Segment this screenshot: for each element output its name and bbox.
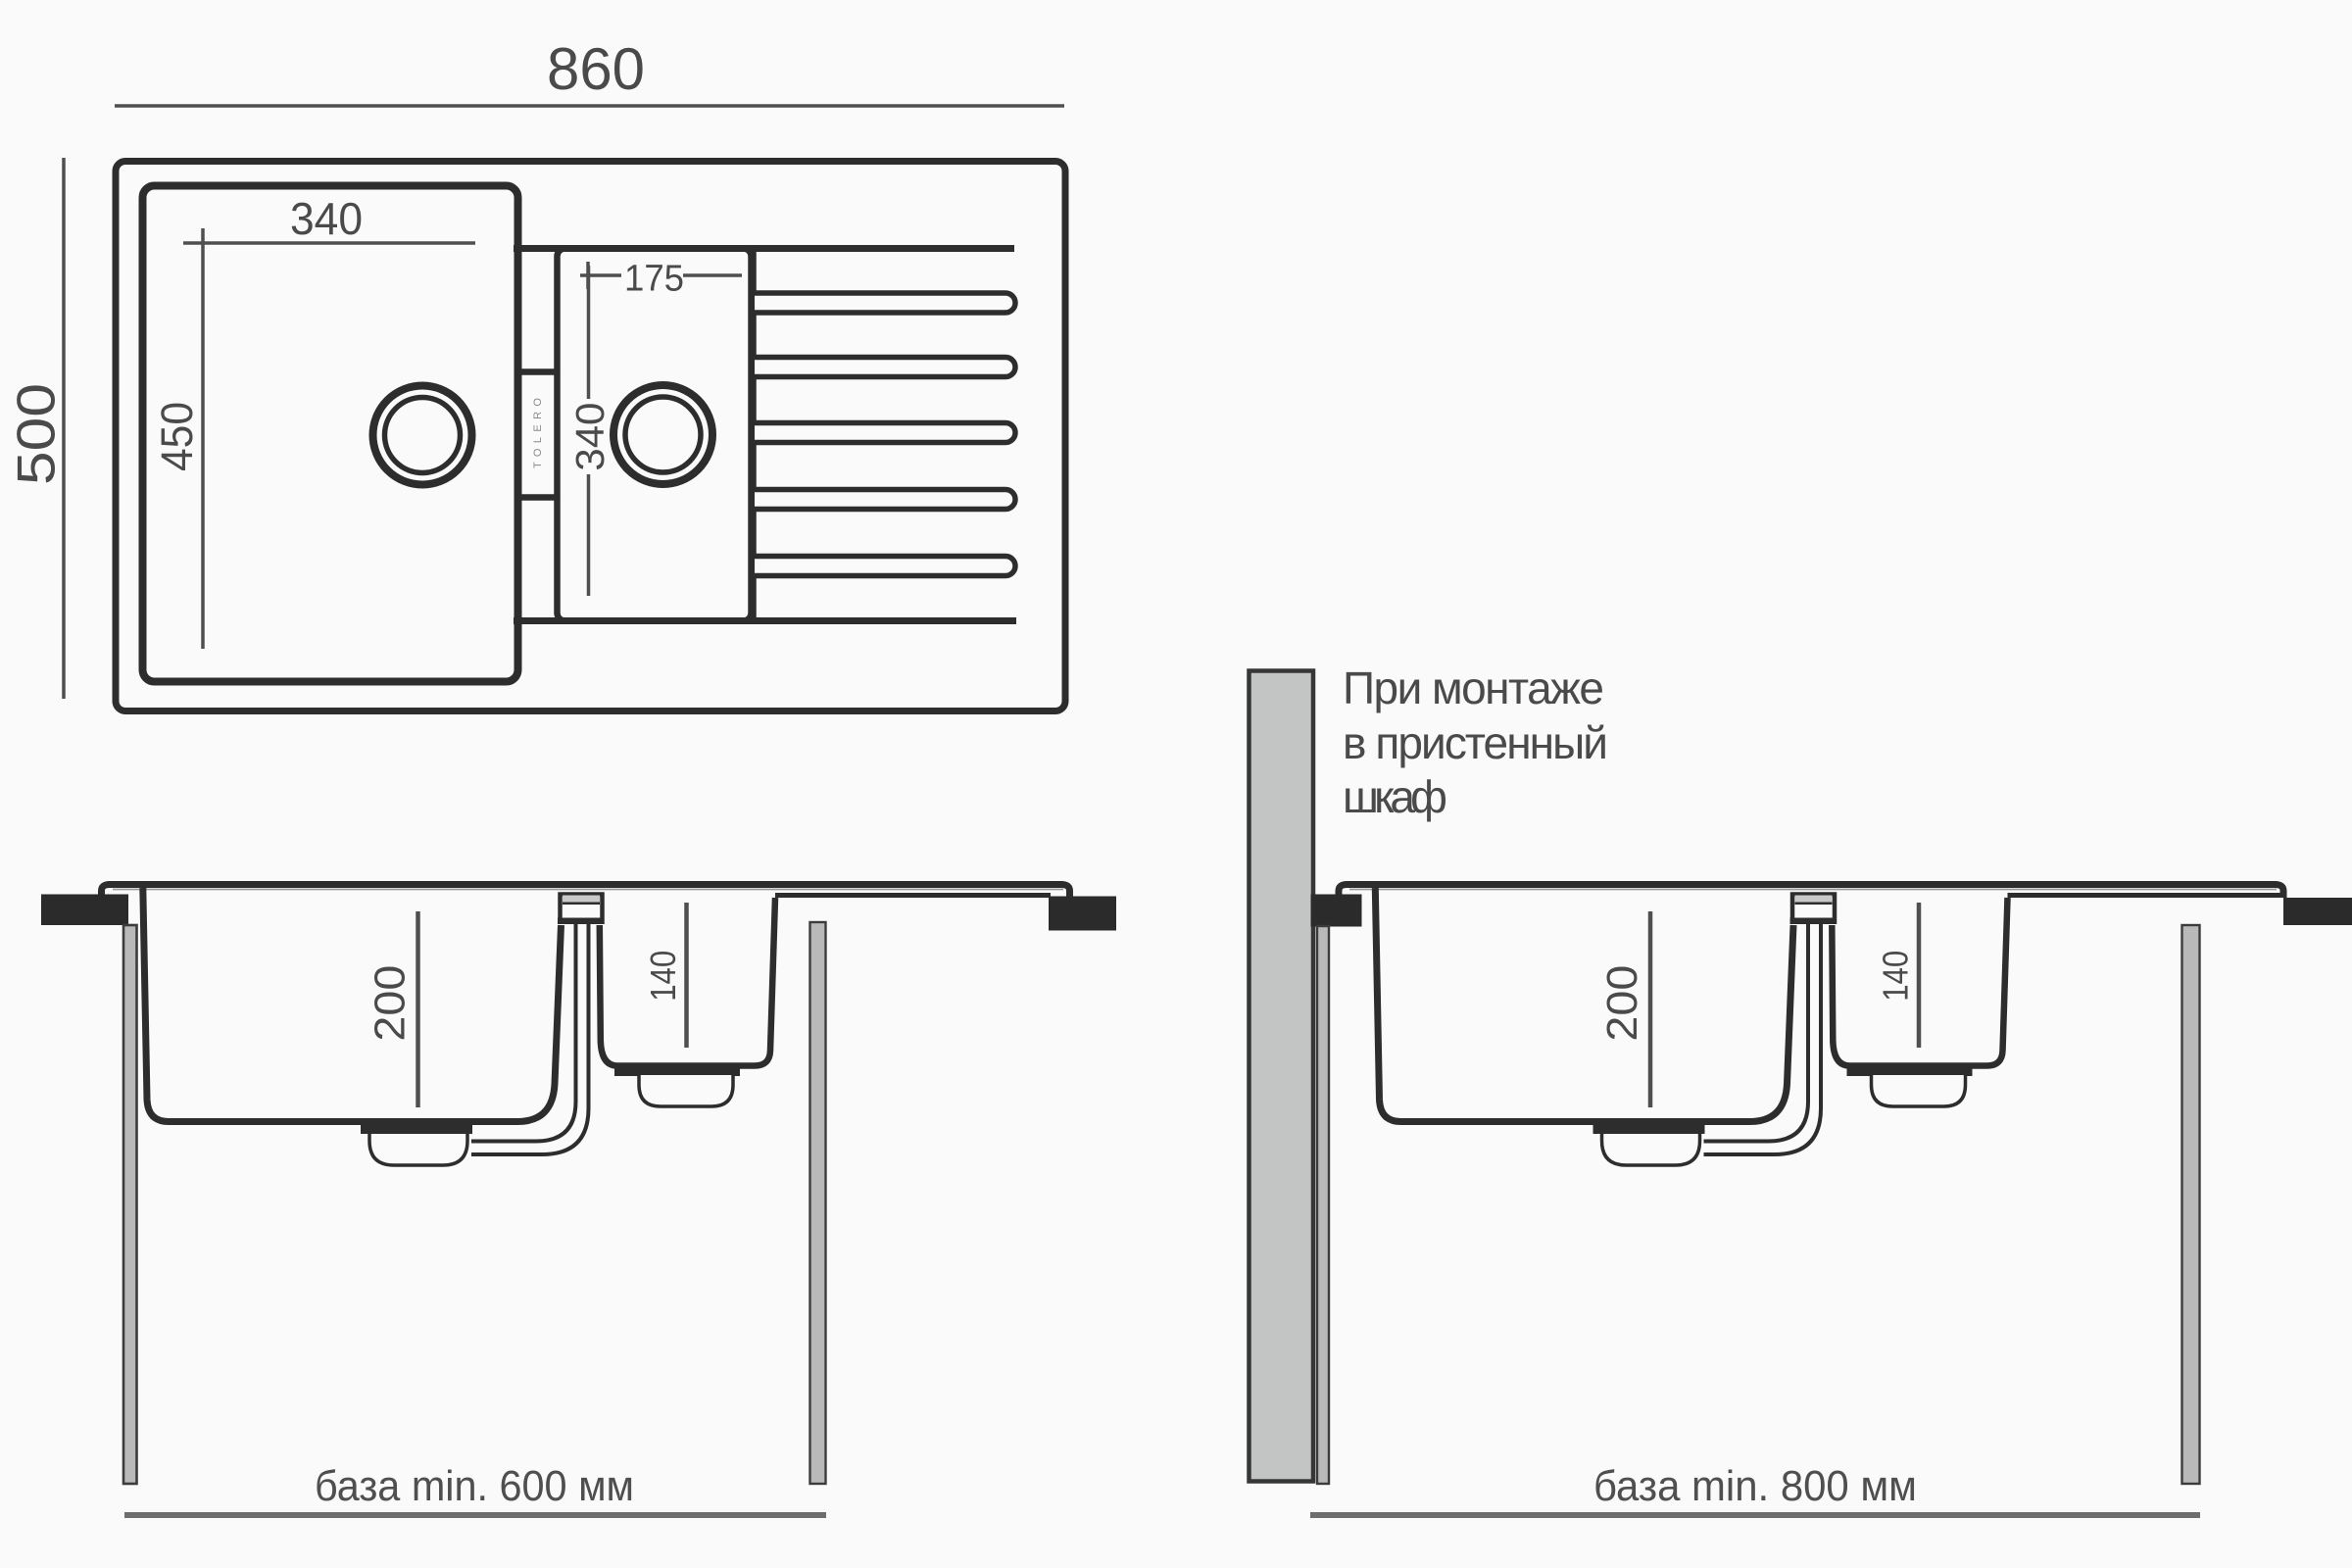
svg-text:340: 340 [567,403,612,471]
svg-text:При монтаже: При монтаже [1343,662,1604,713]
svg-text:175: 175 [624,259,684,300]
svg-text:860: 860 [547,36,645,102]
svg-text:шкаф: шкаф [1343,771,1447,822]
svg-text:500: 500 [6,383,67,485]
svg-text:база min. 800 мм: база min. 800 мм [1593,1462,1917,1510]
svg-text:в пристенный: в пристенный [1343,717,1608,768]
svg-text:база min. 600 мм: база min. 600 мм [315,1462,634,1510]
svg-text:450: 450 [152,402,202,471]
svg-text:340: 340 [290,193,363,244]
